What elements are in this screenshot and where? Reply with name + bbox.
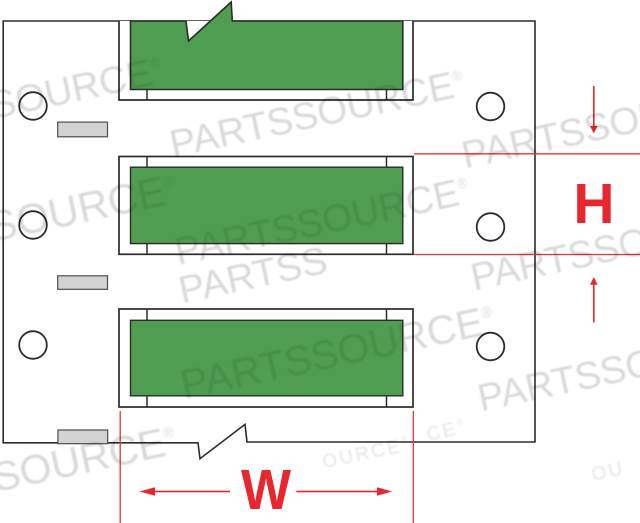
- svg-text:W: W: [241, 457, 291, 521]
